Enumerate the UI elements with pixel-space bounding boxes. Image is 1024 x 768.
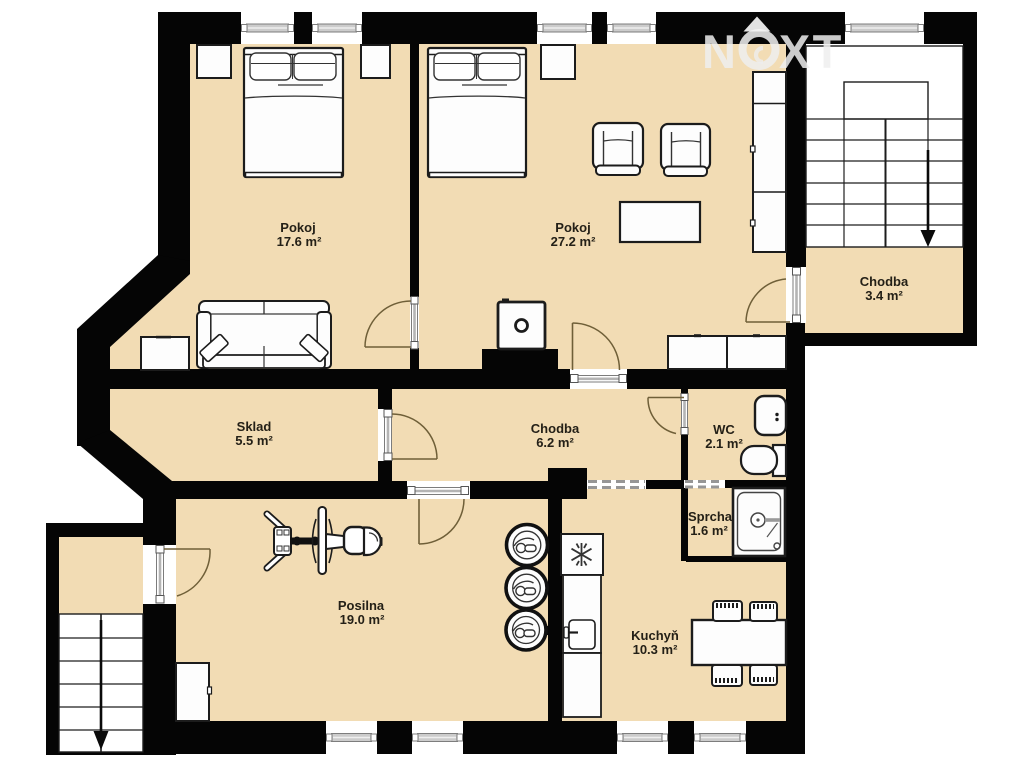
svg-text:Sprcha: Sprcha: [688, 509, 733, 524]
svg-text:17.6 m²: 17.6 m²: [277, 234, 322, 249]
svg-text:3.4 m²: 3.4 m²: [865, 288, 903, 303]
svg-text:WC: WC: [713, 422, 735, 437]
svg-text:Pokoj: Pokoj: [280, 220, 315, 235]
svg-text:Posilna: Posilna: [338, 598, 385, 613]
svg-text:Pokoj: Pokoj: [555, 220, 590, 235]
svg-text:T: T: [813, 25, 842, 78]
svg-text:X: X: [779, 25, 810, 78]
svg-text:Kuchyň: Kuchyň: [631, 628, 679, 643]
svg-text:19.0 m²: 19.0 m²: [340, 612, 385, 627]
svg-text:Chodba: Chodba: [531, 421, 580, 436]
svg-text:Sklad: Sklad: [237, 419, 272, 434]
svg-text:2.1 m²: 2.1 m²: [705, 436, 743, 451]
svg-text:6.2 m²: 6.2 m²: [536, 435, 574, 450]
svg-text:27.2 m²: 27.2 m²: [551, 234, 596, 249]
svg-text:10.3 m²: 10.3 m²: [633, 642, 678, 657]
svg-text:1.6 m²: 1.6 m²: [690, 523, 728, 538]
svg-text:Chodba: Chodba: [860, 274, 909, 289]
svg-text:5.5 m²: 5.5 m²: [235, 433, 273, 448]
svg-text:N: N: [702, 25, 736, 78]
